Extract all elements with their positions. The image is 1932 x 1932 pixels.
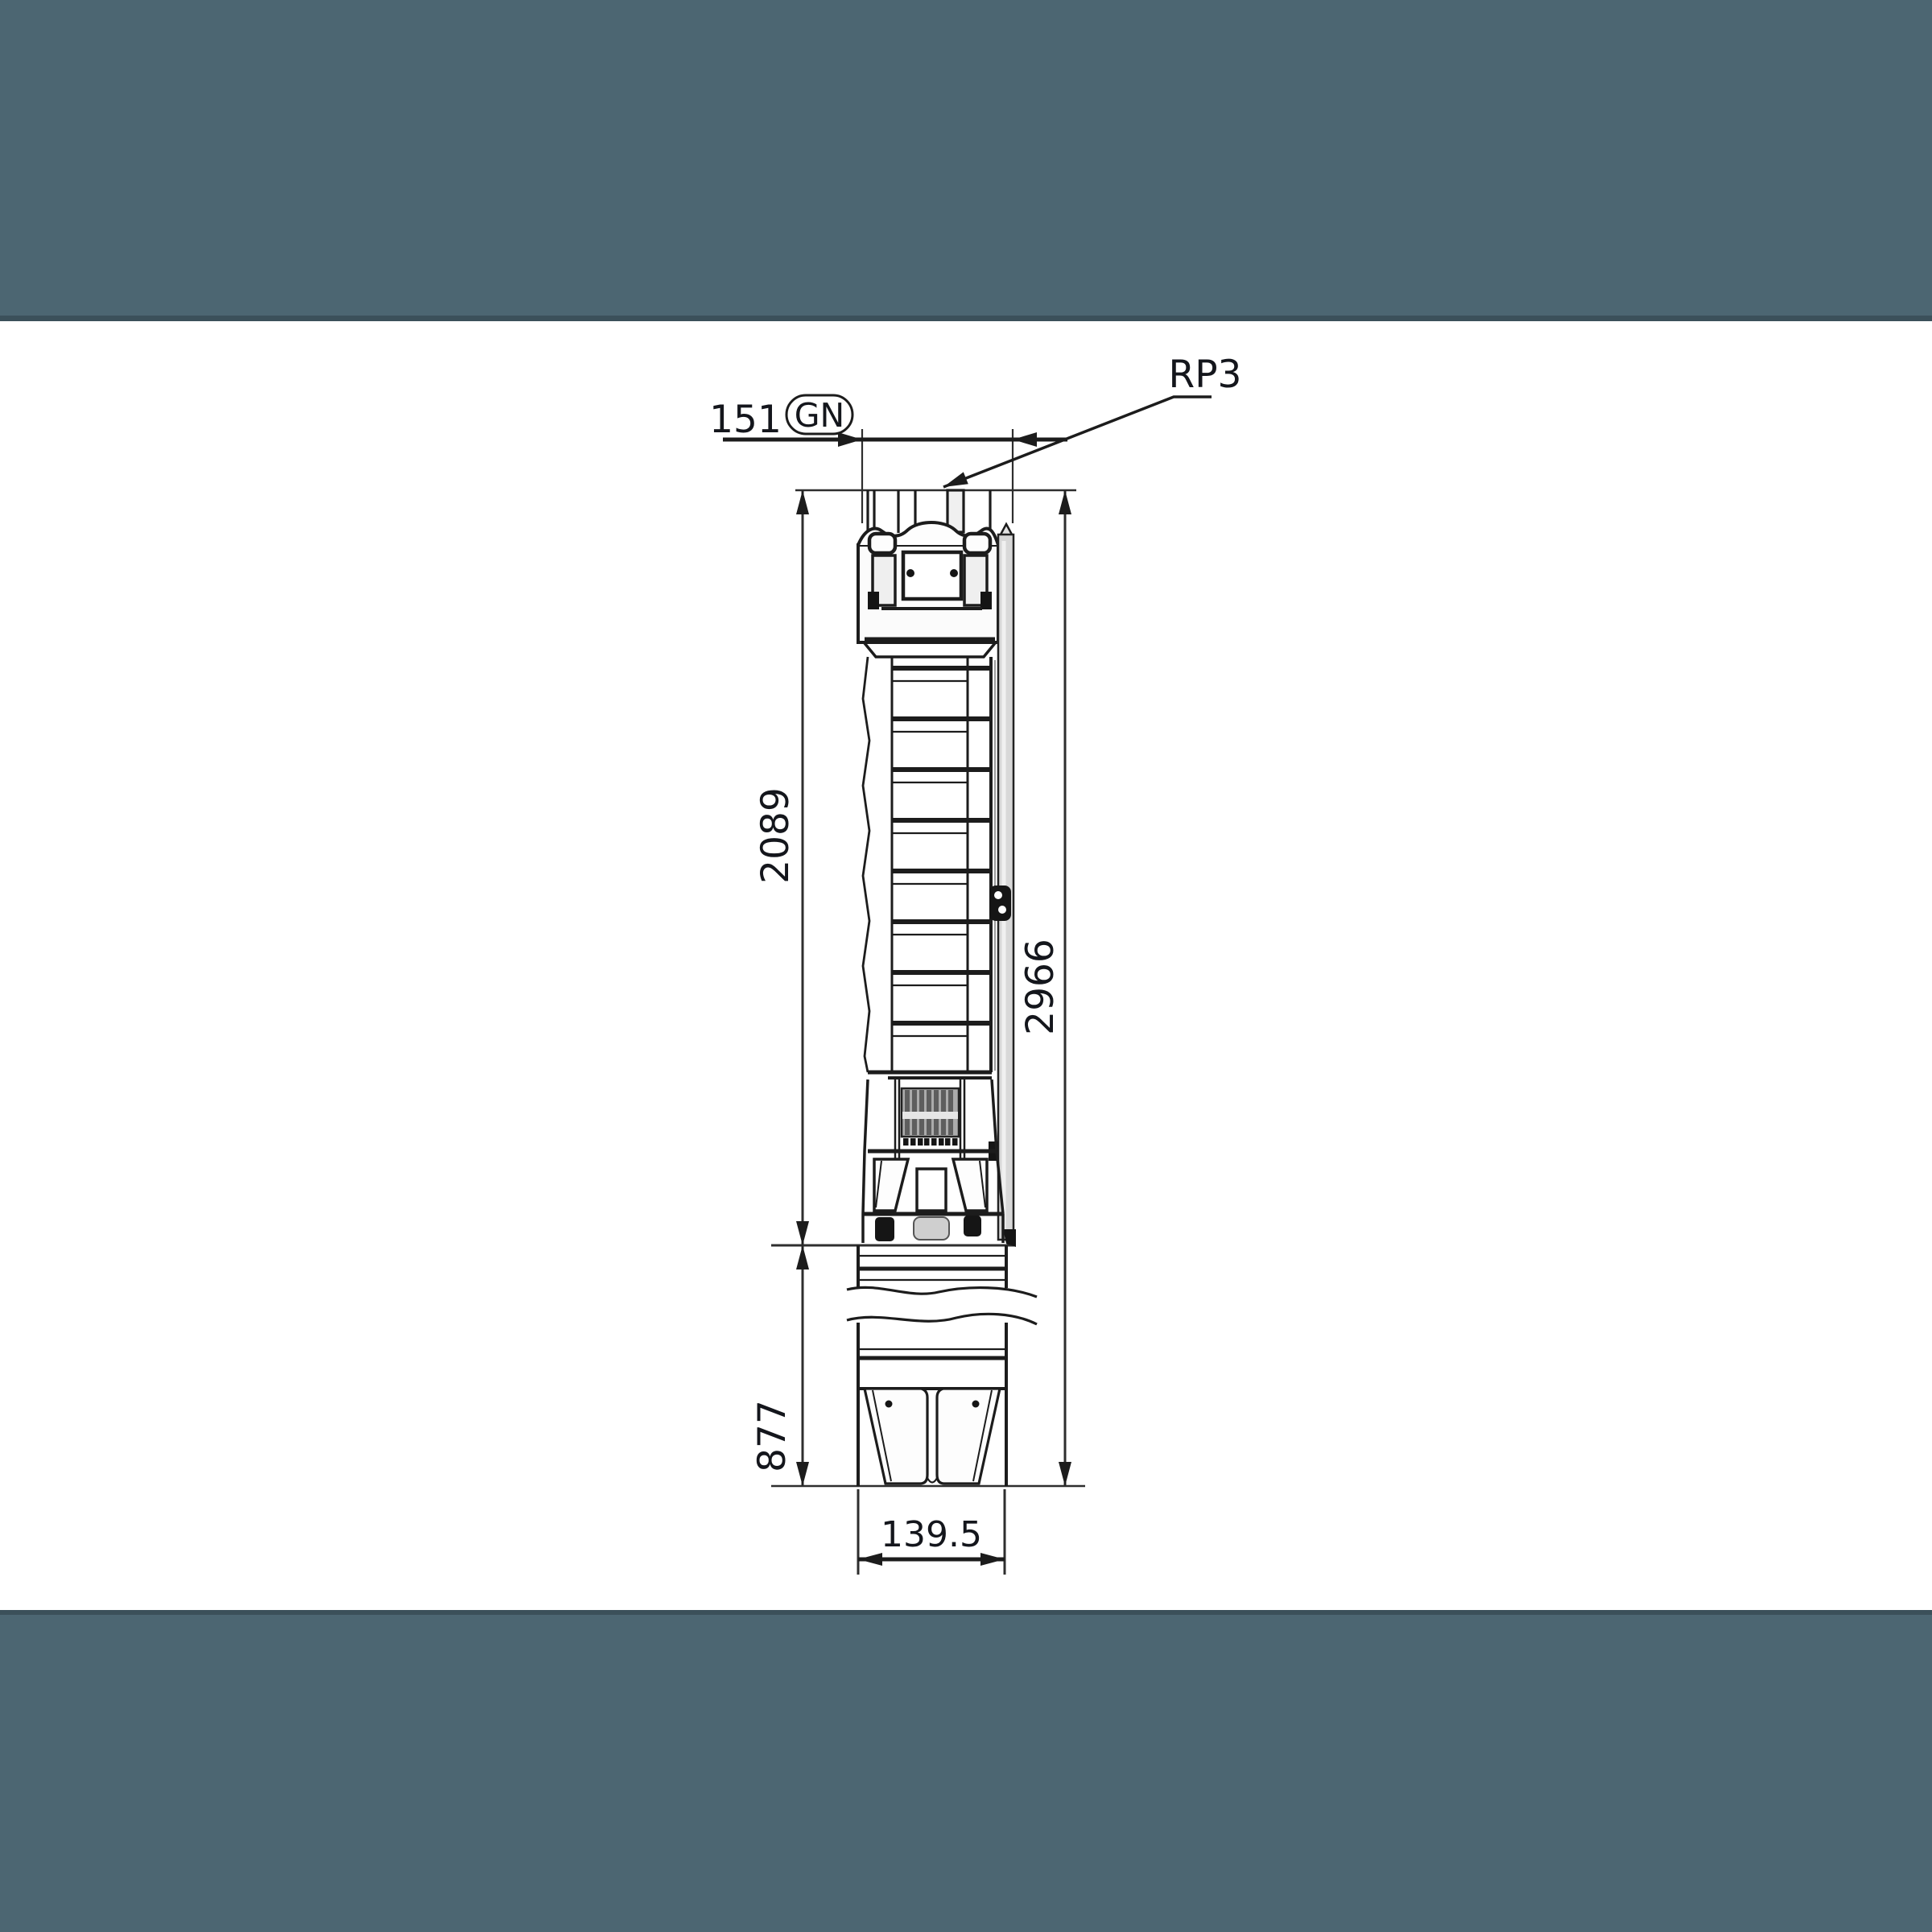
cable-clamp xyxy=(989,885,1011,921)
flange-foot-right xyxy=(964,1216,981,1236)
motor-bottom-plate-left xyxy=(865,1389,927,1484)
motor-bottom-plate-right xyxy=(937,1389,1000,1484)
rp3-label: RP3 xyxy=(1169,353,1242,397)
head-bolt-left xyxy=(869,534,895,553)
flange-foot-left xyxy=(875,1217,894,1241)
arrowhead-left-icon xyxy=(858,1553,882,1566)
pump-chamber-stack xyxy=(863,657,995,1072)
arrowhead-up-junction-icon xyxy=(796,1245,809,1269)
arrowhead-down-junction-icon xyxy=(796,1221,809,1245)
motor-center-channel xyxy=(927,1478,937,1483)
dim-2966-label: 2966 xyxy=(1018,939,1063,1035)
bottom-letterbox-edge xyxy=(0,1610,1932,1615)
suction-center-port xyxy=(917,1169,946,1211)
chamber-outer-left-edge xyxy=(863,657,869,1072)
rp3-leader-line xyxy=(943,397,1212,487)
arrowhead-down-icon xyxy=(1059,1462,1071,1486)
dimension-left-column: 2089 877 xyxy=(750,490,809,1486)
arrowhead-right-icon xyxy=(980,1553,1005,1566)
pump-outline xyxy=(847,490,1037,1486)
rp3-callout: RP3 xyxy=(943,353,1241,487)
arrowhead-up-icon xyxy=(1059,490,1071,514)
dimension-overall-length: 2966 xyxy=(1018,490,1071,1486)
dim-877-label: 877 xyxy=(750,1400,795,1472)
strainer xyxy=(902,1088,959,1146)
bottom-letterbox-bar xyxy=(0,1610,1932,1932)
dimension-diameter: 139.5 xyxy=(858,1489,1005,1575)
top-letterbox-edge xyxy=(0,316,1932,321)
break-symbol xyxy=(847,1287,1037,1324)
flange-center-pad xyxy=(914,1217,949,1240)
rp3-arrowhead-icon xyxy=(943,472,968,487)
dim-2089-label: 2089 xyxy=(753,787,798,884)
pump-head xyxy=(858,522,998,657)
arrowhead-up-icon xyxy=(796,490,809,514)
head-bolt-right xyxy=(964,534,990,553)
gn-label: GN xyxy=(795,396,844,435)
pump-dimension-drawing: 151 GN RP3 2089 877 2966 139.5 xyxy=(0,0,1932,1932)
arrowhead-left-icon xyxy=(1013,432,1037,447)
strainer-slots xyxy=(903,1138,958,1146)
dim-139-5-label: 139.5 xyxy=(881,1514,982,1555)
motor xyxy=(847,1245,1037,1486)
arrowhead-down-icon xyxy=(796,1462,809,1486)
suction-interconnector xyxy=(863,1078,1003,1243)
top-letterbox-bar xyxy=(0,0,1932,321)
pump-stage-lines xyxy=(892,668,990,1036)
screenshot-canvas: 151 GN RP3 2089 877 2966 139.5 xyxy=(0,0,1932,1932)
dim-151-label: 151 xyxy=(709,398,782,442)
